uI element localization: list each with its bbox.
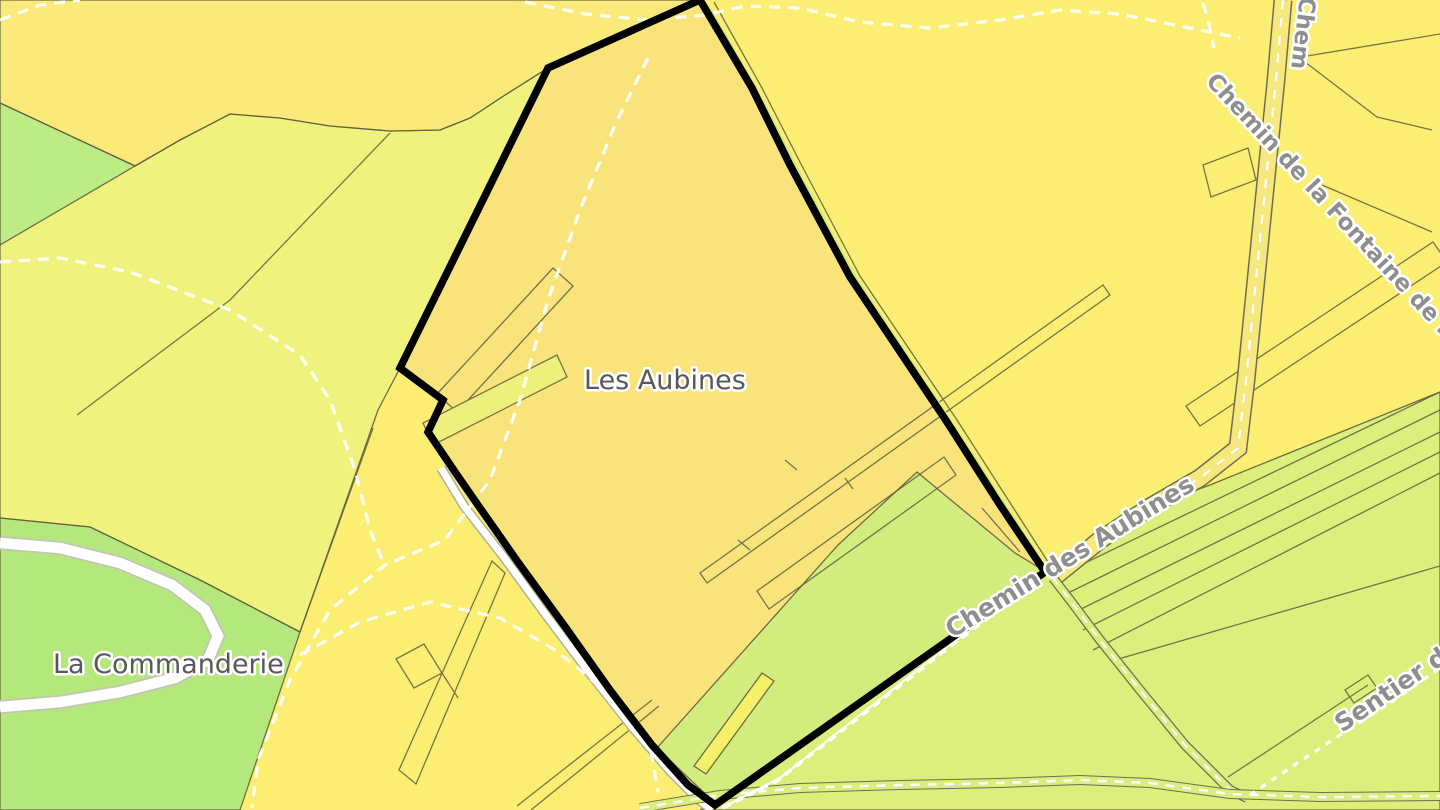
label-la-commanderie: La Commanderie: [53, 649, 284, 680]
map-canvas[interactable]: Les Aubines La Commanderie Chemin des Au…: [0, 0, 1440, 810]
map-viewport[interactable]: Les Aubines La Commanderie Chemin des Au…: [0, 0, 1440, 810]
label-les-aubines: Les Aubines: [584, 365, 746, 396]
